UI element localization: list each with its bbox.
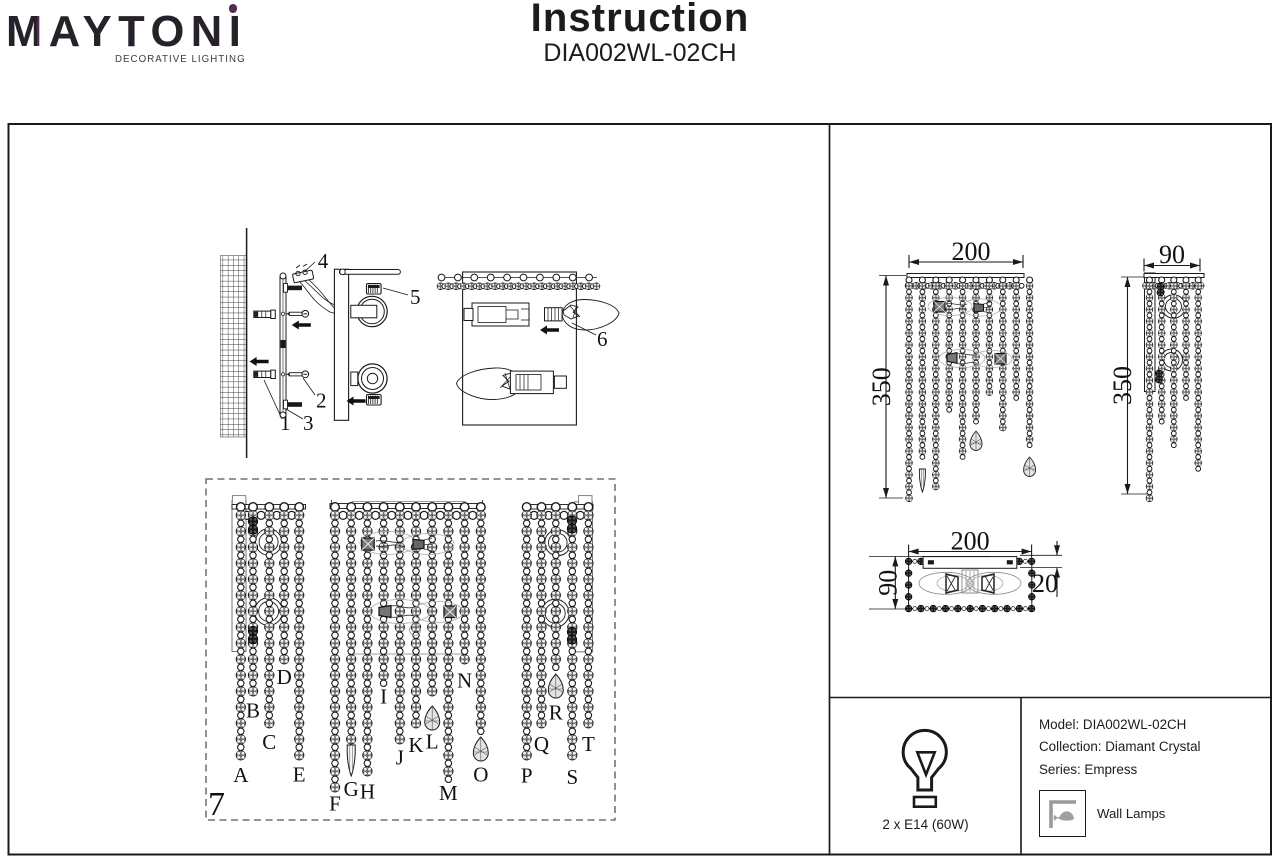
svg-text:200: 200 — [951, 527, 990, 556]
svg-text:G: G — [344, 777, 359, 801]
svg-text:350: 350 — [1108, 366, 1137, 405]
svg-text:3: 3 — [303, 411, 314, 435]
svg-text:6: 6 — [597, 327, 608, 351]
svg-text:90: 90 — [873, 570, 902, 596]
svg-text:N: N — [457, 669, 472, 693]
svg-text:L: L — [426, 730, 439, 754]
svg-text:200: 200 — [952, 237, 991, 266]
svg-text:A: A — [233, 763, 249, 787]
svg-text:K: K — [408, 733, 423, 757]
svg-text:C: C — [262, 730, 276, 754]
svg-text:Q: Q — [534, 732, 549, 756]
svg-text:4: 4 — [318, 249, 329, 273]
svg-text:J: J — [396, 746, 404, 770]
svg-text:P: P — [521, 764, 533, 788]
svg-text:H: H — [360, 780, 375, 804]
svg-text:350: 350 — [867, 367, 896, 406]
svg-text:S: S — [566, 765, 578, 789]
svg-text:E: E — [293, 763, 306, 787]
svg-text:90: 90 — [1159, 240, 1185, 269]
svg-text:M: M — [439, 781, 458, 805]
svg-text:20: 20 — [1032, 569, 1058, 598]
svg-text:I: I — [380, 685, 387, 709]
svg-text:1: 1 — [280, 411, 291, 435]
svg-text:B: B — [246, 699, 260, 723]
svg-text:R: R — [549, 701, 563, 725]
svg-text:O: O — [473, 763, 488, 787]
svg-text:T: T — [582, 732, 595, 756]
svg-text:2: 2 — [316, 389, 327, 413]
svg-text:5: 5 — [410, 285, 421, 309]
svg-text:D: D — [277, 665, 292, 689]
svg-text:F: F — [329, 792, 341, 816]
svg-text:7: 7 — [208, 786, 225, 823]
